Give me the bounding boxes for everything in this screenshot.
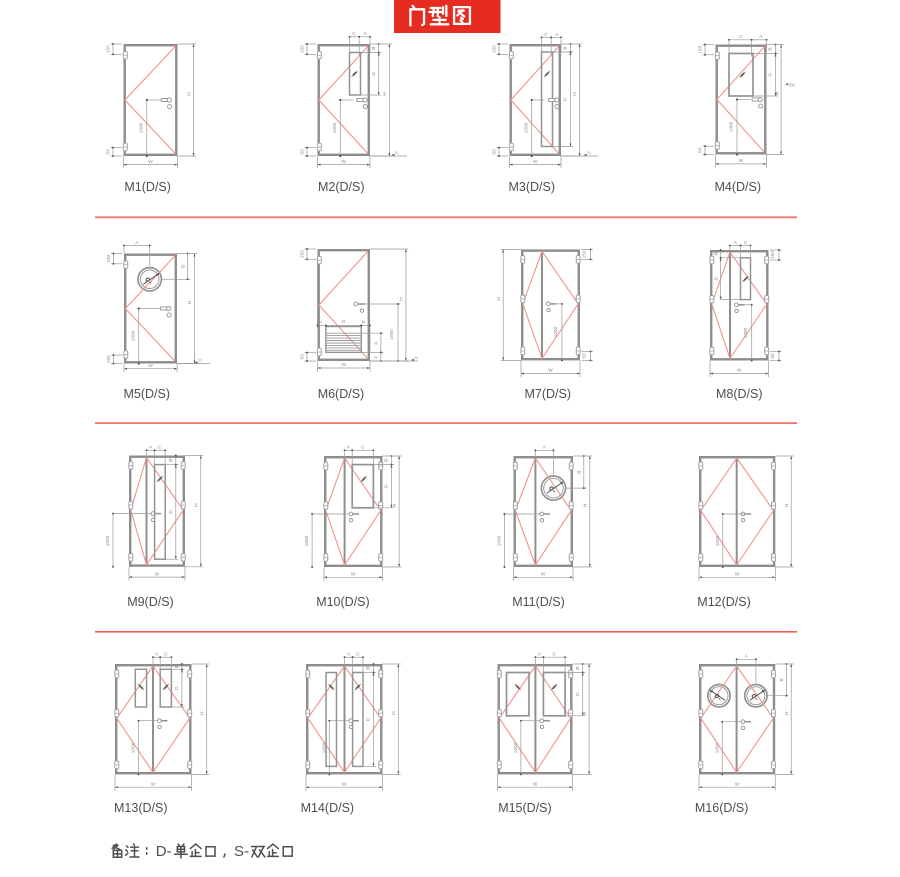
svg-text:W: W: [533, 781, 538, 787]
svg-text:150: 150: [106, 254, 112, 262]
svg-text:H: H: [774, 91, 780, 95]
svg-text:150: 150: [106, 355, 112, 363]
svg-text:D: D: [713, 276, 719, 280]
svg-text:M6(D/S): M6(D/S): [318, 387, 365, 401]
svg-text:C: C: [552, 652, 556, 658]
svg-text:D: D: [371, 72, 377, 76]
svg-text:50: 50: [491, 149, 497, 155]
svg-text:1000: 1000: [729, 121, 735, 132]
svg-text:H: H: [391, 711, 397, 715]
svg-text:W: W: [533, 159, 538, 165]
svg-text:M9(D/S): M9(D/S): [127, 595, 174, 609]
svg-text:150: 150: [299, 250, 305, 258]
svg-text:E: E: [318, 320, 324, 323]
svg-text:W: W: [351, 572, 356, 578]
svg-text:50: 50: [299, 149, 305, 155]
svg-text:1000: 1000: [304, 535, 310, 546]
svg-text:1000: 1000: [715, 535, 721, 546]
svg-text:W: W: [155, 571, 160, 577]
svg-text:1000: 1000: [513, 742, 519, 753]
svg-text:1000: 1000: [105, 535, 111, 546]
svg-text:B: B: [713, 252, 719, 255]
svg-text:50: 50: [198, 359, 202, 363]
svg-text:M5(D/S): M5(D/S): [124, 387, 171, 401]
svg-text:W: W: [151, 781, 156, 787]
svg-text:W: W: [548, 368, 553, 374]
svg-text:H: H: [582, 711, 588, 715]
svg-text:M2(D/S): M2(D/S): [318, 180, 365, 194]
svg-text:C: C: [356, 652, 360, 658]
svg-text:B: B: [563, 46, 569, 49]
svg-text:150: 150: [299, 45, 305, 53]
svg-text:M7(D/S): M7(D/S): [525, 387, 572, 401]
svg-text:M4(D/S): M4(D/S): [715, 180, 762, 194]
svg-text:C: C: [164, 652, 168, 658]
svg-text:C: C: [158, 445, 162, 451]
svg-text:B: B: [575, 667, 581, 670]
svg-text:1000: 1000: [553, 326, 559, 337]
svg-text:H: H: [194, 503, 200, 507]
svg-text:C: C: [739, 34, 743, 40]
svg-text:50: 50: [415, 356, 419, 360]
svg-text:150: 150: [491, 45, 497, 53]
svg-text:1000: 1000: [743, 327, 749, 338]
svg-text:D: D: [563, 97, 569, 101]
svg-text:W: W: [735, 572, 740, 578]
svg-text:W: W: [737, 368, 742, 374]
svg-text:H: H: [784, 711, 790, 715]
svg-text:B: B: [180, 265, 186, 268]
svg-text:C: C: [352, 31, 356, 37]
svg-text:50: 50: [697, 147, 703, 153]
svg-text:50: 50: [582, 353, 588, 359]
svg-text:F: F: [374, 355, 380, 358]
svg-text:150: 150: [697, 45, 703, 53]
svg-text:W: W: [342, 159, 347, 165]
svg-text:H: H: [382, 92, 388, 96]
svg-text:H: H: [199, 711, 205, 715]
svg-text:S-: S-: [234, 843, 249, 860]
svg-text:50: 50: [105, 149, 111, 155]
svg-text:D: D: [366, 717, 372, 721]
svg-text:H: H: [572, 92, 578, 96]
svg-text:1000: 1000: [131, 742, 137, 753]
svg-text:1000: 1000: [497, 535, 503, 546]
svg-text:1000: 1000: [714, 742, 720, 753]
svg-text:1000: 1000: [332, 122, 338, 133]
svg-text:W: W: [541, 572, 546, 578]
svg-text:150: 150: [582, 250, 588, 258]
svg-text:D: D: [768, 73, 774, 77]
svg-text:B: B: [577, 470, 583, 473]
svg-text:M14(D/S): M14(D/S): [301, 801, 354, 815]
svg-text:M13(D/S): M13(D/S): [114, 801, 167, 815]
svg-text:M15(D/S): M15(D/S): [498, 801, 551, 815]
svg-text:D: D: [575, 692, 581, 696]
svg-text:E: E: [361, 320, 367, 323]
svg-text:M16(D/S): M16(D/S): [695, 801, 748, 815]
svg-text:H: H: [187, 300, 193, 304]
svg-text:1000: 1000: [523, 122, 529, 133]
svg-text:1000: 1000: [389, 329, 395, 340]
svg-text:W: W: [148, 159, 153, 165]
svg-text:H: H: [186, 92, 192, 96]
svg-text:C: C: [744, 240, 748, 246]
svg-text:B: B: [174, 665, 180, 668]
svg-text:50: 50: [770, 353, 776, 359]
svg-text:H: H: [496, 297, 502, 301]
svg-text:W: W: [735, 781, 740, 787]
svg-text:50: 50: [395, 151, 399, 155]
svg-text:W: W: [342, 362, 347, 368]
svg-text:M3(D/S): M3(D/S): [509, 180, 556, 194]
svg-text:M10(D/S): M10(D/S): [316, 595, 369, 609]
svg-text:D: D: [168, 510, 174, 514]
svg-text:M11(D/S): M11(D/S): [512, 595, 565, 609]
svg-text:5%: 5%: [789, 82, 795, 87]
svg-text:D: D: [174, 686, 180, 690]
svg-text:150: 150: [105, 45, 111, 53]
svg-text:D-: D-: [156, 843, 172, 860]
svg-text:H: H: [399, 297, 405, 301]
svg-text:B: B: [779, 678, 785, 681]
svg-text:B: B: [366, 667, 372, 670]
svg-text:H: H: [583, 503, 589, 507]
svg-text:B: B: [168, 458, 174, 461]
svg-text:W: W: [739, 158, 744, 164]
svg-text:50: 50: [587, 151, 591, 155]
svg-text:M8(D/S): M8(D/S): [716, 387, 763, 401]
svg-text:M1(D/S): M1(D/S): [124, 180, 171, 194]
svg-text:1000: 1000: [321, 742, 327, 753]
svg-text:1000: 1000: [139, 122, 145, 133]
svg-text:H: H: [784, 503, 790, 507]
svg-text:H: H: [392, 503, 398, 507]
svg-text:D: D: [384, 484, 390, 488]
svg-text:W: W: [148, 363, 153, 369]
svg-text:W: W: [342, 781, 347, 787]
svg-text:B: B: [768, 47, 774, 50]
svg-text:1000: 1000: [130, 330, 136, 341]
svg-text:150: 150: [770, 251, 776, 259]
svg-text:50: 50: [299, 354, 305, 360]
svg-text:C: C: [361, 445, 365, 451]
svg-text:M12(D/S): M12(D/S): [697, 595, 750, 609]
svg-text:G: G: [342, 319, 346, 325]
svg-text:B: B: [384, 459, 390, 462]
svg-text:B: B: [371, 47, 377, 50]
svg-text:C: C: [544, 32, 548, 38]
